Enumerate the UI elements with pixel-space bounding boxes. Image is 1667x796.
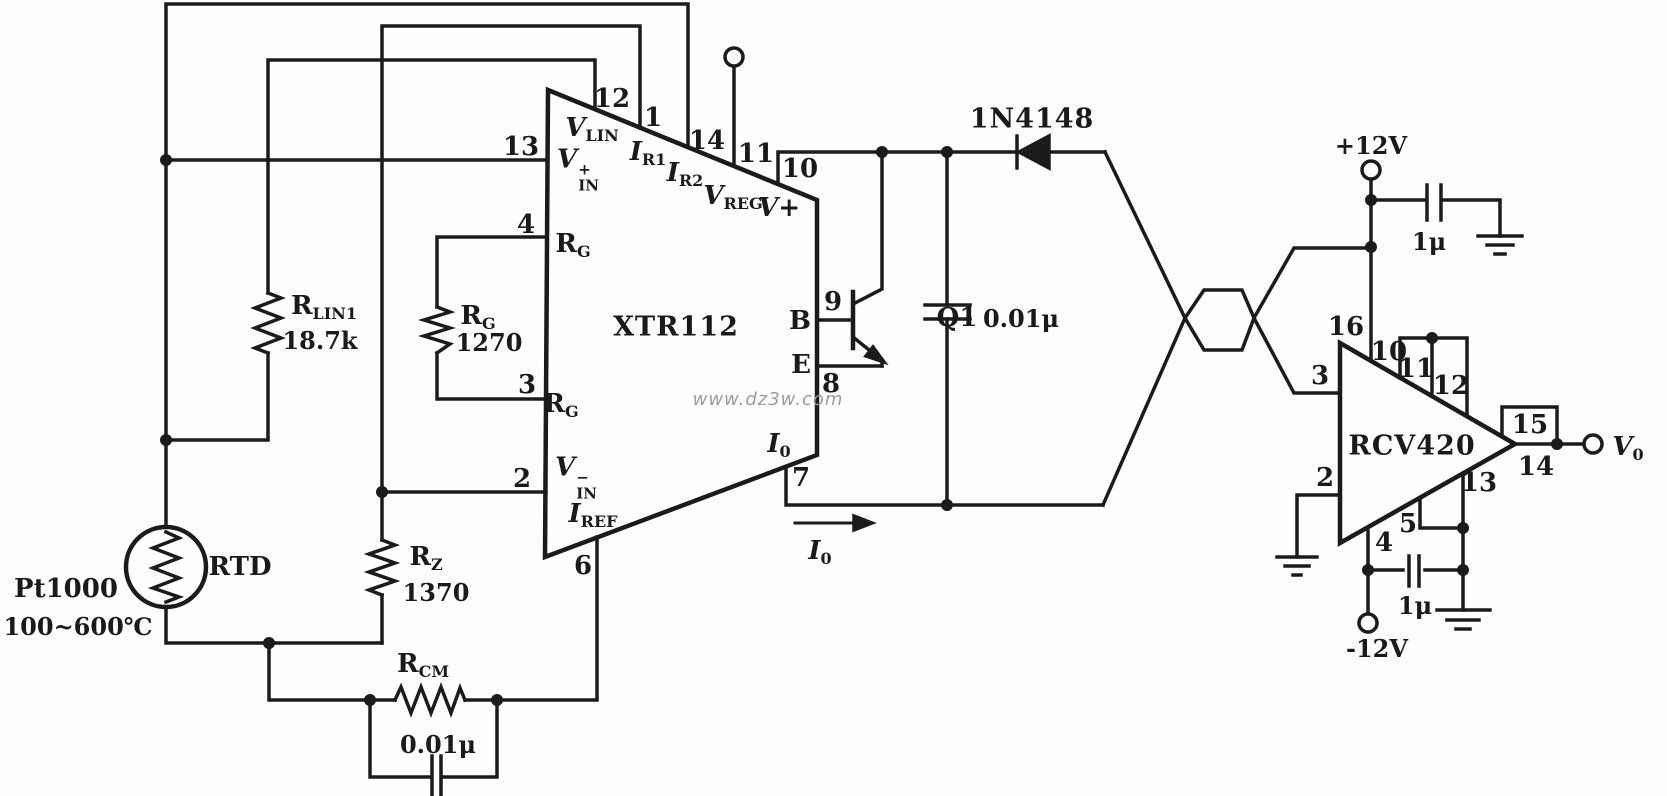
vpos-label: +12V <box>1335 134 1407 158</box>
io-current-arrow <box>795 516 872 530</box>
xtr-pin10-number: 10 <box>782 156 818 182</box>
xtr-pin12-number: 12 <box>594 86 630 112</box>
xtr-pin2-number: 2 <box>513 466 531 492</box>
rcv-pin15-number: 15 <box>1512 412 1548 438</box>
c-loop-value: 0.01μ <box>983 307 1059 331</box>
terminal-vpos <box>1362 161 1380 179</box>
xtr-pin13-number: 13 <box>503 134 539 160</box>
ccm-capacitor-symbol <box>432 756 441 795</box>
r-g-ref: RG <box>460 303 495 329</box>
q1-collector <box>853 152 882 304</box>
r-cm-ref: RCM <box>397 651 449 677</box>
r-cm-symbol <box>395 687 465 713</box>
rcv-pin2-number: 2 <box>1316 465 1334 491</box>
q1-emitter-label: E <box>791 352 811 378</box>
xtr-pin8-number: 8 <box>822 371 840 397</box>
wire-rcm-left <box>269 643 395 700</box>
c-vneg-value: 1μ <box>1398 594 1432 618</box>
xtr-vin-plus-label: V+IN <box>557 147 599 194</box>
r-z-ref: RZ <box>409 544 442 570</box>
xtr-vreg-label: VREG <box>703 183 762 209</box>
r-g-symbol <box>424 307 450 353</box>
terminal-vreg <box>725 48 743 66</box>
rcv-pin13-number: 13 <box>1461 470 1497 496</box>
diode-part-label: 1N4148 <box>970 106 1095 133</box>
q1-label: Q1 <box>937 305 978 331</box>
xtr-pin9-number: 9 <box>824 289 842 315</box>
schematic-canvas: www.dz3w.com XTR112 RCV420 1N4148 Q1 0.0… <box>0 0 1667 796</box>
q1-base-label: B <box>789 308 811 334</box>
wire-rcv-pin2 <box>1297 495 1340 557</box>
wire-rcv-pin5 <box>1420 501 1463 528</box>
r-lin1-ref: RLIN1 <box>291 293 357 319</box>
xtr-pin14-number: 14 <box>689 128 725 154</box>
xtr-rg-lower-label: RG <box>543 391 578 417</box>
xtr-pin11-number: 11 <box>738 141 774 167</box>
wire-ir2-to-rtd-node <box>166 4 688 527</box>
r-lin1-symbol <box>255 293 281 353</box>
xtr-io-label: I0 <box>767 431 790 457</box>
rcv-pin4-number: 4 <box>1375 530 1393 556</box>
npn-transistor-symbol <box>817 152 884 366</box>
rcv-pin16-number: 16 <box>1328 314 1364 340</box>
ground-symbol-pin13 <box>1437 610 1490 629</box>
xtr-pin1-number: 1 <box>644 105 662 131</box>
rtd-label: RTD <box>208 554 271 580</box>
xtr-pin6-number: 6 <box>574 553 592 579</box>
xtr-iref-label: IREF <box>568 501 617 527</box>
xtr-rg-upper-label: RG <box>555 231 590 257</box>
xtr-pin7-number: 7 <box>792 465 810 491</box>
rcv-pin11-number: 11 <box>1398 356 1434 382</box>
rcv420-part-label: RCV420 <box>1348 433 1475 460</box>
watermark: www.dz3w.com <box>693 391 844 409</box>
wire-cvpos-right <box>1443 200 1500 236</box>
terminal-vout <box>1584 435 1602 453</box>
loop-current-label: I0 <box>808 538 831 564</box>
xtr-pin3-number: 3 <box>518 372 536 398</box>
r-lin1-value: 18.7k <box>282 329 357 353</box>
rcv-pin14-number: 14 <box>1518 454 1554 480</box>
rtd-symbol <box>126 527 206 607</box>
c-cm-value: 0.01μ <box>400 733 476 757</box>
r-z-value: 1370 <box>403 581 470 605</box>
r-z-symbol <box>369 540 395 595</box>
ground-symbol-vpos <box>1478 236 1522 254</box>
vout-label: V0 <box>1612 434 1643 460</box>
diode-symbol <box>1017 136 1049 168</box>
xtr-pin4-number: 4 <box>517 212 535 238</box>
wire-rlin1-return <box>166 353 268 440</box>
wire-rtd-bottom <box>166 607 382 643</box>
rcv-pin5-number: 5 <box>1399 511 1417 537</box>
xtr-ir2-label: IR2 <box>667 160 704 186</box>
twisted-pair-wire-a <box>1105 152 1340 393</box>
rcv-pin12-number: 12 <box>1433 373 1469 399</box>
wire-pin7-io <box>786 467 1103 505</box>
xtr-ir1-label: IR1 <box>630 139 667 165</box>
rtd-part-label: Pt1000 <box>14 576 118 602</box>
xtr-vlin-label: VLIN <box>565 115 619 141</box>
junction-dots <box>160 146 1563 706</box>
terminal-vneg <box>1359 614 1377 632</box>
xtr112-part-label: XTR112 <box>613 314 739 341</box>
rcv-pin3-number: 3 <box>1311 363 1329 389</box>
rtd-range-label: 100~600℃ <box>3 615 152 639</box>
vneg-label: -12V <box>1346 637 1408 661</box>
ground-symbol-pin2 <box>1277 557 1317 575</box>
xtr-vin-minus-label: V−IN <box>555 455 597 502</box>
r-g-value: 1270 <box>456 331 523 355</box>
cvneg-capacitor-symbol <box>1409 556 1419 586</box>
c-vpos-value: 1μ <box>1412 230 1446 254</box>
cvpos-capacitor-symbol <box>1427 185 1441 220</box>
xtr-vplus-label: V+ <box>758 195 800 221</box>
wire-rg-upper <box>437 237 546 307</box>
